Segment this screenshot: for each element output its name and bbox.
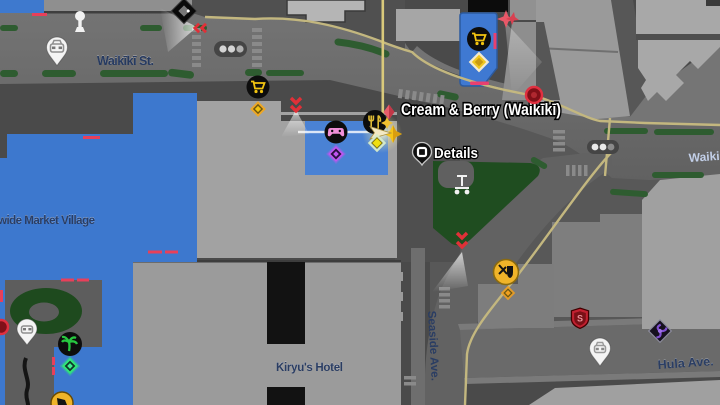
svg-text:Waiki: Waiki	[688, 149, 720, 165]
svg-text:S: S	[577, 314, 583, 324]
svg-text:Waikīkī St.: Waikīkī St.	[97, 54, 154, 68]
svg-text:Details: Details	[434, 145, 478, 162]
svg-text:wide Market Village: wide Market Village	[0, 215, 95, 227]
svg-text:Kiryu's Hotel: Kiryu's Hotel	[276, 362, 343, 374]
